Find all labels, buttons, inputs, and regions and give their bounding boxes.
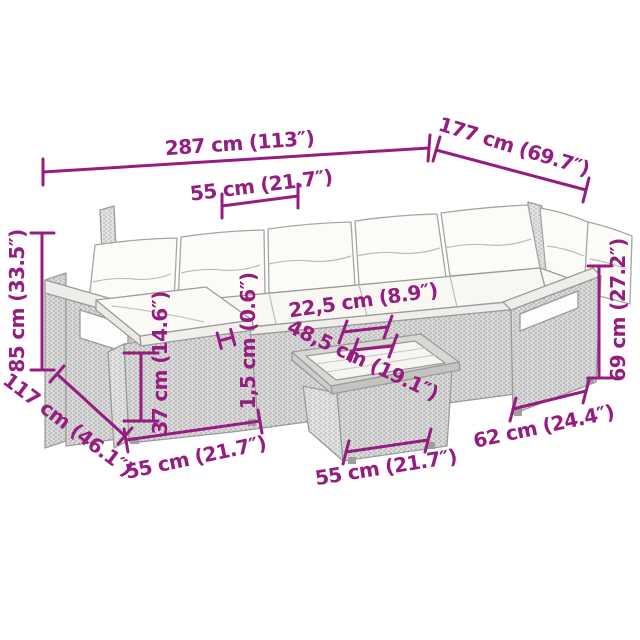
back-cushion xyxy=(268,222,355,293)
dimension-diagram: 287 cm (113″) 55 cm (21.7″) 177 cm (69.7… xyxy=(0,0,640,640)
back-cushion xyxy=(355,214,446,285)
label-backrest-height: 85 cm (33.5″) xyxy=(5,229,29,372)
dimension-diagram-canvas: 287 cm (113″) 55 cm (21.7″) 177 cm (69.7… xyxy=(0,0,640,640)
label-right-seat-width: 62 cm (24.4″) xyxy=(471,400,616,453)
label-tabletop-thickness: 1,5 cm (0.6″) xyxy=(236,273,260,410)
label-ottoman-height: 37 cm (14.6″) xyxy=(148,291,172,434)
label-armrest-height: 69 cm (27.2″) xyxy=(606,238,630,381)
